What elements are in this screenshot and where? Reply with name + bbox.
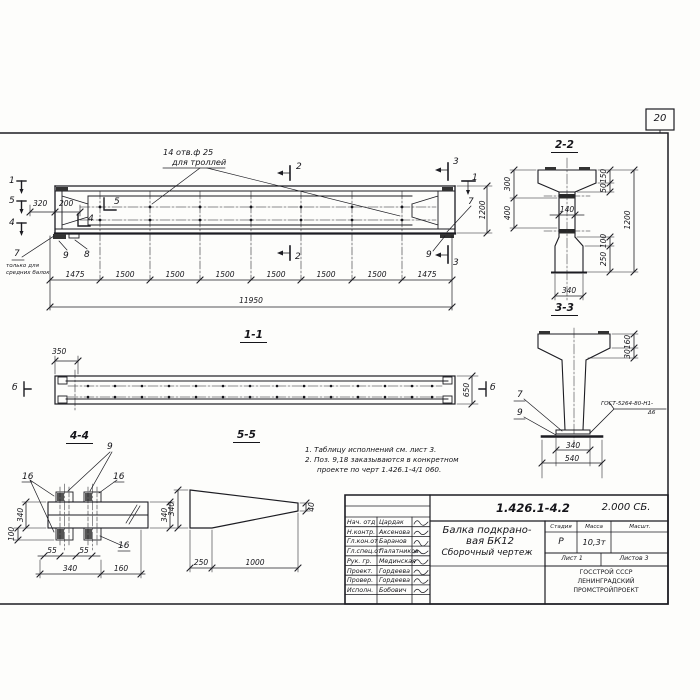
stamp-header-scale: Масшт. bbox=[629, 524, 651, 530]
dim-50: 50 bbox=[600, 183, 608, 193]
dim-340-s44-left: 340 bbox=[17, 508, 25, 522]
stamp-header-mass: Масса bbox=[585, 524, 603, 530]
dim-seg-7: 1500 bbox=[367, 271, 386, 279]
stamp-row-name: Баранов bbox=[379, 538, 407, 545]
pos-7-left: 7 bbox=[14, 250, 20, 260]
stamp-doc-number: 1.426.1-4.2 bbox=[496, 501, 570, 515]
cut-label-3-top: 3 bbox=[453, 158, 459, 168]
pos-8: 8 bbox=[84, 251, 90, 261]
hole-note-line1: 14 отв.ф 25 bbox=[163, 148, 213, 157]
stamp-header-stage: Стадия bbox=[550, 524, 571, 530]
elevation-view bbox=[12, 163, 492, 310]
dim-55-b: 55 bbox=[79, 547, 89, 555]
stamp-row-name: Цардак bbox=[379, 519, 404, 526]
dim-340-s22: 340 bbox=[562, 287, 576, 295]
dim-seg-6: 1500 bbox=[316, 271, 335, 279]
cut-label-1-right: 1 bbox=[472, 174, 478, 184]
dim-1200-elevation: 1200 bbox=[479, 200, 487, 219]
dim-30: 30 bbox=[624, 349, 632, 359]
stamp-title-line2: вая БК12 bbox=[466, 536, 514, 547]
stamp-row-role: Исполн. bbox=[347, 587, 373, 594]
pos-7-note-1: только для bbox=[6, 263, 39, 269]
cut-label-2-bottom: 2 bbox=[295, 253, 301, 263]
section-1-1-view bbox=[24, 356, 486, 410]
stamp-stage-value: Р bbox=[558, 538, 563, 548]
section-2-2-view bbox=[510, 158, 638, 300]
dim-250-s55: 250 bbox=[194, 559, 208, 567]
dim-55-a: 55 bbox=[47, 547, 57, 555]
dim-300: 300 bbox=[504, 177, 512, 191]
cut-label-5: 5 bbox=[9, 197, 15, 207]
stamp-title-line1: Балка подкрано- bbox=[442, 525, 531, 536]
hole-note-line2: для троллей bbox=[172, 158, 226, 167]
pos-16-a: 16 bbox=[22, 473, 33, 483]
pos-9-right: 9 bbox=[426, 251, 432, 261]
dim-seg-2: 1500 bbox=[115, 271, 134, 279]
stamp-series: 2.000 СБ. bbox=[602, 502, 651, 513]
dim-40: 40 bbox=[308, 502, 316, 512]
dim-1000: 1000 bbox=[245, 559, 264, 567]
pos-7-s33: 7 bbox=[517, 391, 523, 401]
dim-160-s44: 160 bbox=[114, 565, 128, 573]
stamp-row-role: Рук. гр. bbox=[347, 558, 372, 565]
dim-seg-3: 1500 bbox=[165, 271, 184, 279]
weld-note-line2: Δ6 bbox=[648, 410, 655, 416]
dim-340-s33: 340 bbox=[566, 442, 580, 450]
dim-650: 650 bbox=[463, 383, 471, 397]
dim-seg-5: 1500 bbox=[266, 271, 285, 279]
note-line-3: проекте по черт 1.426.1-4/1 060. bbox=[317, 466, 441, 474]
stamp-row-name: Мединская bbox=[379, 558, 416, 565]
dim-250-section: 250 bbox=[600, 252, 608, 266]
dim-320: 320 bbox=[33, 200, 47, 208]
dim-seg-4: 1500 bbox=[215, 271, 234, 279]
cut-label-3-bottom: 3 bbox=[453, 259, 459, 269]
dim-1200-section: 1200 bbox=[624, 210, 632, 229]
dim-340-s55: 340 bbox=[168, 502, 176, 516]
dim-150: 150 bbox=[600, 169, 608, 183]
note-line-1: 1. Таблицу исполнений см. лист 3. bbox=[305, 446, 436, 454]
cut-marks-left bbox=[17, 181, 26, 231]
pos-9-s44: 9 bbox=[107, 443, 113, 453]
section-3-3-title: 3-3 bbox=[551, 302, 578, 316]
pos-7-right: 7 bbox=[468, 198, 474, 208]
stamp-sheets: Листов 3 bbox=[619, 556, 648, 563]
section-4-4-title: 4-4 bbox=[66, 430, 93, 444]
pos-9-left: 9 bbox=[63, 252, 69, 262]
section-2-2-title: 2-2 bbox=[551, 139, 578, 153]
stamp-row-role: Нач. отд bbox=[347, 519, 375, 526]
mark-b-left: б bbox=[12, 384, 18, 394]
stamp-mass-value: 10,3т bbox=[583, 538, 606, 547]
stamp-row-role: Гл.спец.от bbox=[347, 548, 382, 555]
stamp-title-line3: Сборочный чертеж bbox=[441, 549, 532, 559]
mark-b-right: б bbox=[490, 384, 496, 394]
stamp-row-name: Бобович bbox=[379, 587, 406, 594]
pos-16-b: 16 bbox=[113, 473, 124, 483]
stamp-row-name: Гордеева bbox=[379, 577, 410, 584]
section-5-5-title: 5-5 bbox=[233, 429, 260, 443]
dim-160-s33: 160 bbox=[624, 335, 632, 349]
stamp-row-name: Аксенова bbox=[379, 529, 410, 536]
page-number: 20 bbox=[654, 113, 667, 124]
stamp-row-role: Н.контр. bbox=[347, 529, 375, 536]
stamp-row-name: Гордеева bbox=[379, 568, 410, 575]
cut-label-4-inner: 4 bbox=[88, 215, 94, 225]
stamp-org-line1: ГОССТРОЙ СССР bbox=[580, 570, 633, 577]
dim-340-s44-bottom: 340 bbox=[63, 565, 77, 573]
section-1-1-title: 1-1 bbox=[240, 329, 267, 343]
stamp-org-line2: ЛЕНИНГРАДСКИЙ bbox=[577, 579, 634, 586]
note-line-2: 2. Поз. 9,18 заказываются в конкретном bbox=[305, 456, 459, 464]
dim-140: 140 bbox=[560, 206, 574, 214]
stamp-org-line3: ПРОМСТРОЙПРОЕКТ bbox=[573, 588, 638, 595]
stamp-sheet: Лист 1 bbox=[561, 556, 583, 563]
weld-note-line1: ГОСТ-5264-80-Н1- bbox=[601, 401, 653, 407]
dim-350: 350 bbox=[52, 348, 66, 356]
pos-9-s33: 9 bbox=[517, 409, 523, 419]
pos-16-c: 16 bbox=[118, 542, 129, 552]
drawing-sheet: 20 14 отв.ф 25 для троллей 1 5 4 5 4 320… bbox=[0, 0, 700, 700]
dim-540: 540 bbox=[565, 455, 579, 463]
stamp-row-role: Провер. bbox=[347, 577, 373, 584]
stamp-row-role: Проект. bbox=[347, 568, 373, 575]
drawing-linework bbox=[0, 0, 700, 700]
cut-label-2-top: 2 bbox=[296, 163, 302, 173]
dim-100-s44: 100 bbox=[8, 527, 16, 541]
cut-label-1: 1 bbox=[9, 177, 15, 187]
stamp-row-role: Гл.кон.от bbox=[347, 538, 378, 545]
cut-label-4: 4 bbox=[9, 219, 15, 229]
dim-100: 100 bbox=[600, 234, 608, 248]
cut-label-5-inner: 5 bbox=[114, 198, 120, 208]
dim-seg-1: 1475 bbox=[65, 271, 84, 279]
pos-7-note-2: средних балок bbox=[6, 270, 50, 276]
dim-400: 400 bbox=[504, 206, 512, 220]
signature-squiggles bbox=[414, 521, 428, 593]
section-4-4-view bbox=[14, 452, 174, 578]
dim-seg-8: 1475 bbox=[417, 271, 436, 279]
stamp-row-name: Палатников bbox=[379, 548, 419, 555]
dim-200: 200 bbox=[59, 200, 73, 208]
dim-total: 11950 bbox=[239, 297, 263, 305]
